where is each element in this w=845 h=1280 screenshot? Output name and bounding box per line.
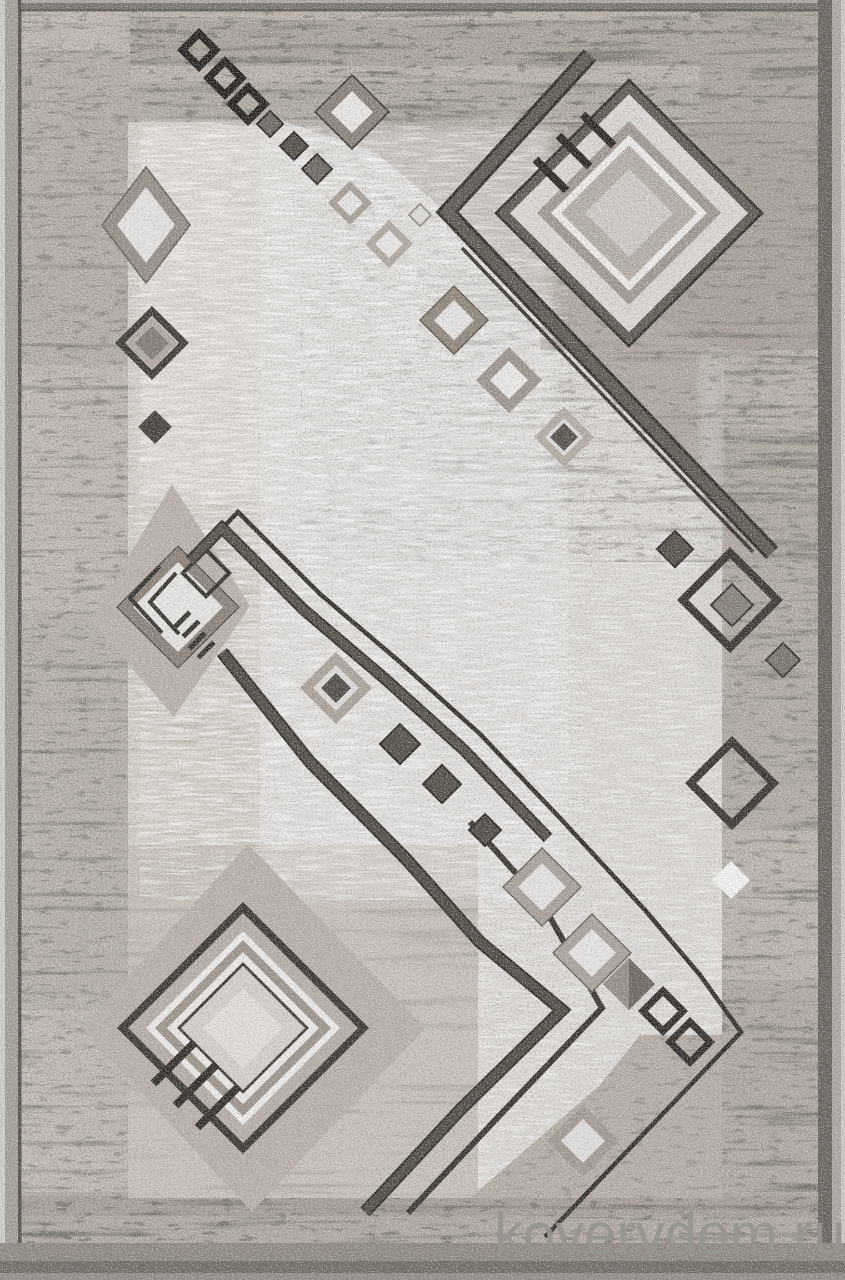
svg-text:kovervdom.ru: kovervdom.ru — [494, 1202, 845, 1267]
